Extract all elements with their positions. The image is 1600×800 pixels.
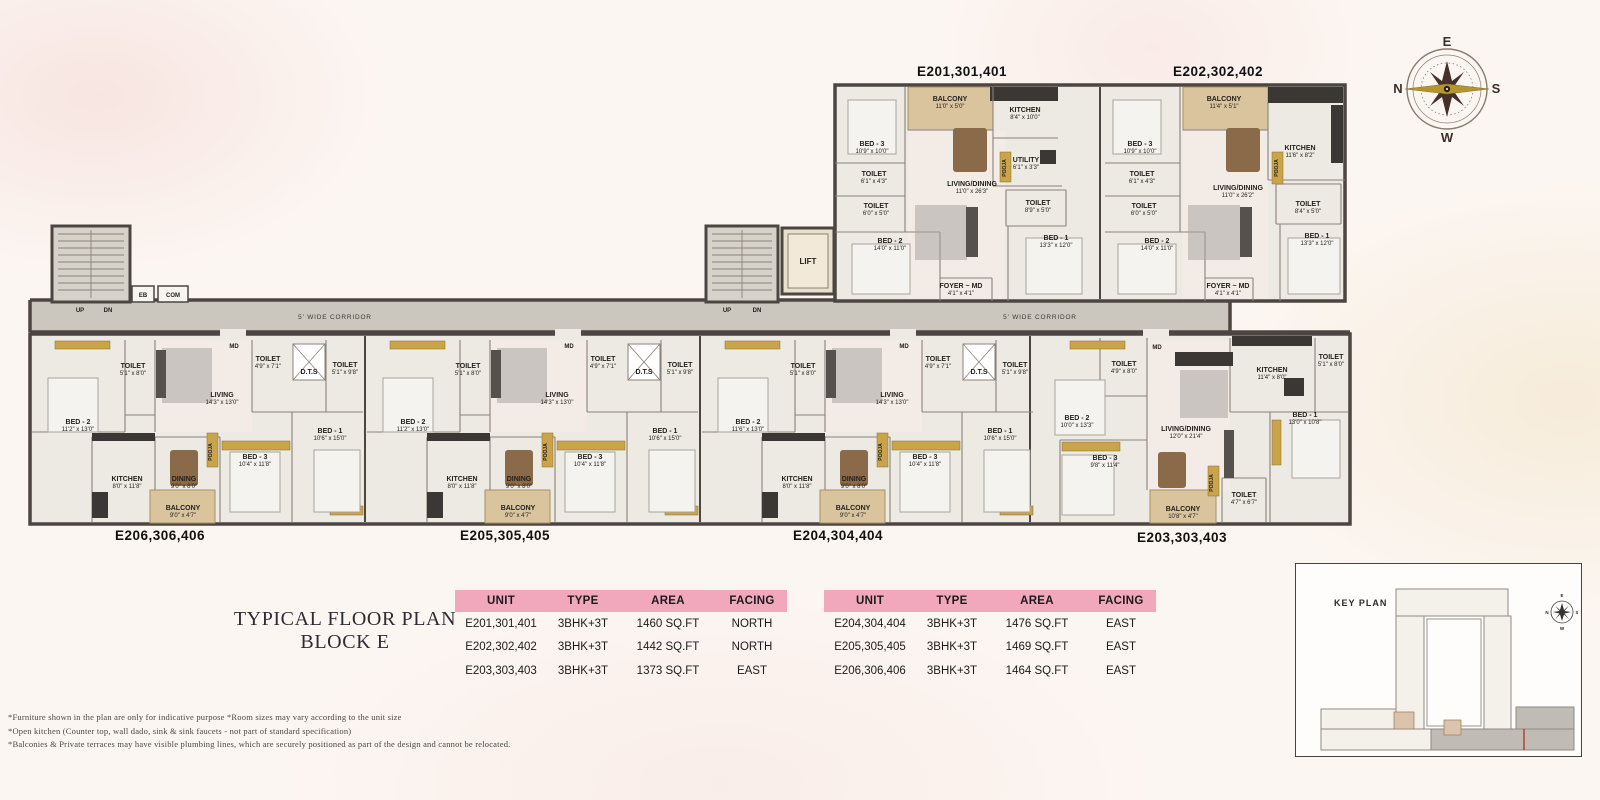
wardrobe bbox=[55, 341, 110, 349]
unit-label: E203,303,403 bbox=[1137, 530, 1227, 545]
bed bbox=[649, 450, 695, 512]
entry-door-gap bbox=[1143, 329, 1169, 338]
footnote-line: *Open kitchen (Counter top, wall dado, s… bbox=[8, 725, 510, 739]
wardrobe bbox=[390, 341, 445, 349]
table-header-cell: AREA bbox=[619, 590, 717, 612]
living-rug bbox=[497, 348, 547, 403]
small-label: POOJA bbox=[1209, 474, 1215, 492]
unit-label: E206,306,406 bbox=[115, 528, 205, 543]
table-header-cell: FACING bbox=[717, 590, 787, 612]
table-header-cell: TYPE bbox=[916, 590, 988, 612]
table-cell: 1469 SQ.FT bbox=[988, 636, 1086, 660]
small-label: POOJA bbox=[543, 443, 549, 461]
key-plan-label: KEY PLAN bbox=[1334, 598, 1387, 608]
bed bbox=[1292, 420, 1340, 478]
bed bbox=[314, 450, 360, 512]
table-row: E204,304,4043BHK+3T1476 SQ.FTEAST bbox=[824, 612, 1156, 636]
living-rug bbox=[832, 348, 882, 403]
room-label: D.T.S bbox=[970, 369, 987, 376]
kitchen-counter bbox=[427, 492, 443, 518]
wardrobe bbox=[1070, 341, 1125, 349]
unit-table-left-body: E201,301,4013BHK+3T1460 SQ.FTNORTHE202,3… bbox=[455, 612, 787, 683]
footnote-line: *Furniture shown in the plan are only fo… bbox=[8, 711, 510, 725]
small-label: POOJA bbox=[208, 443, 214, 461]
wardrobe bbox=[1062, 442, 1120, 451]
compass-rose: E S W N bbox=[1390, 26, 1504, 148]
table-cell: 1460 SQ.FT bbox=[619, 612, 717, 636]
wardrobe bbox=[557, 441, 625, 450]
table-cell: E203,303,403 bbox=[455, 659, 547, 683]
table-cell: E206,306,406 bbox=[824, 659, 916, 683]
unit-table-right-body: E204,304,4043BHK+3T1476 SQ.FTEASTE205,30… bbox=[824, 612, 1156, 683]
kitchen-counter bbox=[762, 492, 778, 518]
key-compass-n: N bbox=[1545, 610, 1548, 615]
table-cell: NORTH bbox=[717, 636, 787, 660]
unit-table-left: UNITTYPEAREAFACINGE201,301,4013BHK+3T146… bbox=[455, 590, 787, 683]
unit-label: E201,301,401 bbox=[917, 64, 1007, 79]
small-label: UP bbox=[76, 308, 84, 314]
kitchen-counter bbox=[762, 433, 825, 441]
page-title-line2: BLOCK E bbox=[228, 631, 462, 654]
bed bbox=[565, 452, 615, 512]
entry-door-gap bbox=[555, 329, 581, 338]
small-label: EB bbox=[139, 293, 148, 299]
table-header-cell: AREA bbox=[988, 590, 1086, 612]
small-label: LIFT bbox=[800, 257, 817, 266]
small-label: MD bbox=[229, 344, 239, 350]
sofa bbox=[1224, 430, 1234, 478]
entry-door-gap bbox=[890, 329, 916, 338]
table-cell: 3BHK+3T bbox=[916, 612, 988, 636]
page-title-line1: TYPICAL FLOOR PLAN bbox=[228, 608, 462, 631]
table-cell: 3BHK+3T bbox=[547, 612, 619, 636]
unit-label: E202,302,402 bbox=[1173, 64, 1263, 79]
bed bbox=[984, 450, 1030, 512]
kitchen-counter bbox=[427, 433, 490, 441]
table-row: E205,305,4053BHK+3T1469 SQ.FTEAST bbox=[824, 636, 1156, 660]
small-label: DN bbox=[753, 308, 762, 314]
sofa bbox=[156, 350, 166, 398]
small-label: POOJA bbox=[1002, 159, 1008, 177]
staircase-center bbox=[706, 226, 778, 302]
page: { "colors":{ "header_pink":"#f2a8bc","wa… bbox=[0, 0, 1600, 800]
table-cell: E202,302,402 bbox=[455, 636, 547, 660]
table-cell: E205,305,405 bbox=[824, 636, 916, 660]
kitchen-counter bbox=[1284, 378, 1304, 396]
corridor-label: 5' WIDE CORRIDOR bbox=[1003, 314, 1077, 321]
unit-block-top bbox=[835, 85, 1345, 301]
sofa bbox=[491, 350, 501, 398]
table-header-cell: UNIT bbox=[824, 590, 916, 612]
unit-table-right-head: UNITTYPEAREAFACING bbox=[824, 590, 1156, 612]
compass-n: N bbox=[1393, 81, 1402, 96]
table-cell: E201,301,401 bbox=[455, 612, 547, 636]
unit-label: E205,305,405 bbox=[460, 528, 550, 543]
table-header-cell: FACING bbox=[1086, 590, 1156, 612]
wardrobe bbox=[1272, 420, 1281, 465]
table-cell: 1442 SQ.FT bbox=[619, 636, 717, 660]
table-row: E206,306,4063BHK+3T1464 SQ.FTEAST bbox=[824, 659, 1156, 683]
room-label: D.T.S bbox=[300, 369, 317, 376]
key-plan: KEY PLAN E N S W bbox=[1295, 563, 1582, 757]
dining-table bbox=[1158, 452, 1186, 488]
key-plan-compass: E N S W bbox=[1545, 593, 1578, 631]
compass-w: W bbox=[1441, 130, 1454, 145]
small-label: MD bbox=[1152, 345, 1162, 351]
small-label: MD bbox=[899, 344, 909, 350]
key-compass-s: S bbox=[1575, 610, 1578, 615]
table-row: E201,301,4013BHK+3T1460 SQ.FTNORTH bbox=[455, 612, 787, 636]
living-rug bbox=[162, 348, 212, 403]
unit-table-right: UNITTYPEAREAFACINGE204,304,4043BHK+3T147… bbox=[824, 590, 1156, 683]
footnote-line: *Balconies & Private terraces may have v… bbox=[8, 738, 510, 752]
kitchen-counter bbox=[92, 433, 155, 441]
table-cell: EAST bbox=[1086, 612, 1156, 636]
wardrobe bbox=[725, 341, 780, 349]
table-header-row: UNITTYPEAREAFACING bbox=[455, 590, 787, 612]
table-row: E202,302,4023BHK+3T1442 SQ.FTNORTH bbox=[455, 636, 787, 660]
corridor-label: 5' WIDE CORRIDOR bbox=[298, 314, 372, 321]
bed bbox=[900, 452, 950, 512]
compass-s: S bbox=[1492, 81, 1501, 96]
table-header-row: UNITTYPEAREAFACING bbox=[824, 590, 1156, 612]
table-header-cell: UNIT bbox=[455, 590, 547, 612]
table-cell: 1373 SQ.FT bbox=[619, 659, 717, 683]
table-cell: 3BHK+3T bbox=[916, 659, 988, 683]
small-label: COM bbox=[166, 293, 180, 299]
small-label: DN bbox=[104, 308, 113, 314]
staircase-left bbox=[52, 226, 130, 302]
small-label: UP bbox=[723, 308, 731, 314]
bed bbox=[230, 452, 280, 512]
kitchen-counter bbox=[1175, 352, 1233, 366]
page-title: TYPICAL FLOOR PLAN BLOCK E bbox=[228, 608, 462, 654]
table-header-cell: TYPE bbox=[547, 590, 619, 612]
table-cell: NORTH bbox=[717, 612, 787, 636]
table-cell: 3BHK+3T bbox=[916, 636, 988, 660]
room-label: D.T.S bbox=[635, 369, 652, 376]
kitchen-counter bbox=[1232, 336, 1312, 346]
compass-e: E bbox=[1443, 34, 1452, 49]
unit-table-left-head: UNITTYPEAREAFACING bbox=[455, 590, 787, 612]
unit-label: E204,304,404 bbox=[793, 528, 883, 543]
corridor bbox=[30, 300, 1350, 332]
table-row: E203,303,4033BHK+3T1373 SQ.FTEAST bbox=[455, 659, 787, 683]
table-cell: 3BHK+3T bbox=[547, 636, 619, 660]
wardrobe bbox=[892, 441, 960, 450]
table-cell: 1464 SQ.FT bbox=[988, 659, 1086, 683]
key-compass-e: E bbox=[1560, 593, 1563, 598]
key-plan-drawing: KEY PLAN E N S W bbox=[1296, 564, 1578, 753]
sofa bbox=[826, 350, 836, 398]
table-cell: EAST bbox=[1086, 636, 1156, 660]
small-label: POOJA bbox=[1274, 159, 1280, 177]
table-cell: 3BHK+3T bbox=[547, 659, 619, 683]
table-cell: 1476 SQ.FT bbox=[988, 612, 1086, 636]
small-label: POOJA bbox=[878, 443, 884, 461]
table-cell: EAST bbox=[1086, 659, 1156, 683]
entry-door-gap bbox=[220, 329, 246, 338]
footnotes: *Furniture shown in the plan are only fo… bbox=[8, 711, 510, 752]
living-rug bbox=[1180, 370, 1228, 418]
key-compass-w: W bbox=[1560, 626, 1565, 631]
table-cell: EAST bbox=[717, 659, 787, 683]
kitchen-counter bbox=[92, 492, 108, 518]
table-cell: E204,304,404 bbox=[824, 612, 916, 636]
wardrobe bbox=[222, 441, 290, 450]
small-label: MD bbox=[564, 344, 574, 350]
